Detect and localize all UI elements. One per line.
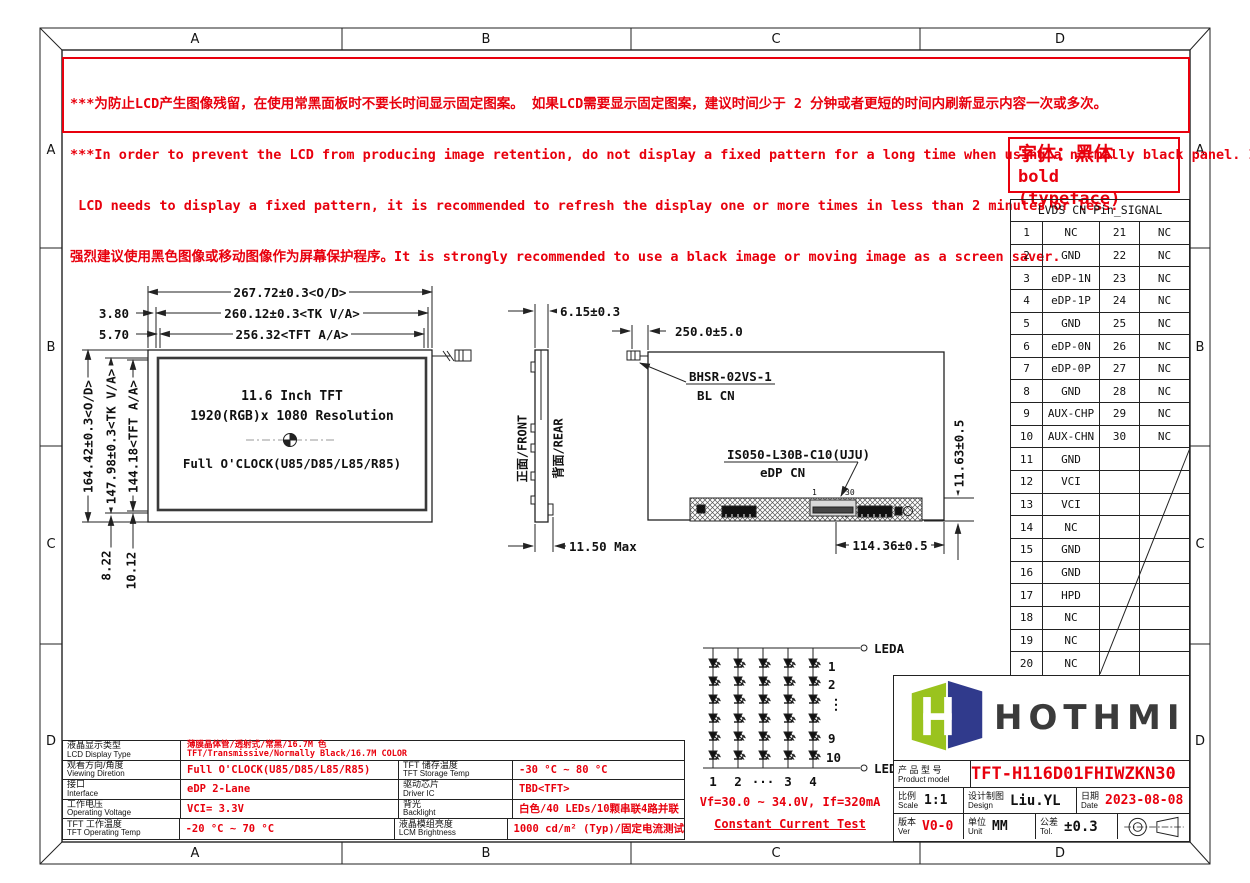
zone-row-right-c: C: [1189, 537, 1211, 552]
version-row: 版本Ver V0-0 单位Unit MM 公差Tol. ±0.3: [894, 813, 1189, 839]
pin-signal-left: GND: [1043, 245, 1100, 268]
dim-offset-570: 5.70: [92, 327, 132, 342]
dim-thickness: 6.15±0.3: [557, 304, 623, 319]
pin-number-left: 6: [1011, 335, 1043, 358]
led-row-9: 9: [828, 731, 836, 746]
pin-signal-right: [1140, 630, 1189, 653]
pin-number-right: [1100, 494, 1140, 517]
led-col-2: 2: [725, 774, 751, 789]
spec-row-voltage: 工作电压Operating Voltage VCI= 3.3V 背光Backli…: [63, 800, 684, 820]
pin-table-row: 5 GND 25 NC: [1011, 313, 1189, 336]
pin-signal-right: [1140, 516, 1189, 539]
pin-signal-right: [1140, 494, 1189, 517]
pin-signal-left: GND: [1043, 562, 1100, 585]
zone-col-top-b: B: [475, 32, 497, 47]
pin-signal-left: GND: [1043, 539, 1100, 562]
pin-signal-right: [1140, 539, 1189, 562]
spec-value: -20 °C ~ 70 °C: [180, 819, 395, 839]
dim-pcb-height: 11.63±0.5: [952, 379, 967, 529]
pin-signal-right: [1140, 562, 1189, 585]
spec-label: 接口Interface: [63, 780, 181, 799]
pin-signal-right: NC: [1140, 245, 1189, 268]
pin-table-row: 16 GND: [1011, 562, 1189, 585]
pin-signal-left: NC: [1043, 222, 1100, 245]
dim-tk-width: 260.12±0.3<TK V/A>: [192, 306, 392, 321]
pin-number-right: 23: [1100, 267, 1140, 290]
edp-pin1-label: 1: [812, 488, 817, 497]
pin-signal-left: NC: [1043, 652, 1100, 675]
pin-signal-left: NC: [1043, 607, 1100, 630]
pin-number-left: 7: [1011, 358, 1043, 381]
unit-value: MM: [986, 819, 1008, 834]
backlight-spec-text: Vf=30.0 ~ 34.0V, If=320mA: [695, 795, 885, 809]
pin-signal-left: HPD: [1043, 584, 1100, 607]
pin-number-right: 25: [1100, 313, 1140, 336]
tolerance-value: ±0.3: [1058, 819, 1098, 835]
pin-signal-right: NC: [1140, 426, 1189, 449]
pin-signal-left: eDP-1P: [1043, 290, 1100, 313]
dim-bottom-822: 8.22: [99, 541, 114, 591]
pin-signal-left: AUX-CHN: [1043, 426, 1100, 449]
typeface-note-cn: 字体：黑体: [1018, 142, 1170, 166]
pin-number-left: 20: [1011, 652, 1043, 675]
panel-size-text: 11.6 Inch TFT: [172, 389, 412, 404]
spec-value: Full O'CLOCK(U85/D85/L85/R85): [181, 761, 399, 780]
zone-row-right-d: D: [1189, 734, 1211, 749]
pin-signal-left: VCI: [1043, 494, 1100, 517]
led-col-dots: ···: [750, 774, 776, 789]
pin-number-left: 19: [1011, 630, 1043, 653]
dim-max-thickness: 11.50 Max: [566, 539, 640, 554]
led-row-10: 10: [826, 750, 841, 765]
spec-label: TFT 工作温度TFT Operating Temp: [63, 819, 180, 839]
version-label: 版本Ver: [894, 817, 916, 836]
zone-row-left-c: C: [40, 537, 62, 552]
edp-connector-part: IS050-L30B-C10(UJU): [727, 447, 870, 462]
spec-value: -30 °C ~ 80 °C: [513, 761, 684, 780]
pin-signal-left: NC: [1043, 630, 1100, 653]
image-retention-warning: ***为防止LCD产生图像残留，在使用常黑面板时不要长时间显示固定图案。 如果L…: [62, 57, 1190, 133]
pin-number-left: 1: [1011, 222, 1043, 245]
backlight-test-text: Constant Current Test: [695, 817, 885, 831]
pin-number-right: 28: [1100, 380, 1140, 403]
pin-table-row: 10 AUX-CHN 30 NC: [1011, 426, 1189, 449]
typeface-note: 字体：黑体 bold (typeface): [1008, 137, 1180, 193]
spec-row-viewing: 观看方向/角度Viewing Diretion Full O'CLOCK(U85…: [63, 761, 684, 781]
pin-signal-left: eDP-1N: [1043, 267, 1100, 290]
zone-row-right-b: B: [1189, 340, 1211, 355]
pin-number-right: 22: [1100, 245, 1140, 268]
spec-label: 工作电压Operating Voltage: [63, 800, 181, 819]
design-label: 设计制图Design: [964, 791, 1004, 810]
spec-label: TFT 储存温度TFT Storage Temp: [399, 761, 513, 780]
pin-number-left: 5: [1011, 313, 1043, 336]
drawing-sheet: A B C D A B C D A B C D A B C D ***为防止LC…: [0, 0, 1250, 883]
spec-value: eDP 2-Lane: [181, 780, 399, 799]
pin-table-row: 9 AUX-CHP 29 NC: [1011, 403, 1189, 426]
pin-table-row: 12 VCI: [1011, 471, 1189, 494]
pin-signal-right: [1140, 584, 1189, 607]
date-value: 2023-08-08: [1099, 793, 1183, 808]
pin-table-row: 11 GND: [1011, 448, 1189, 471]
pin-signal-left: eDP-0N: [1043, 335, 1100, 358]
pin-number-right: [1100, 539, 1140, 562]
pin-number-left: 8: [1011, 380, 1043, 403]
design-value: Liu.YL: [1004, 793, 1061, 809]
led-anode-label: LEDA: [874, 641, 904, 656]
pin-table-rows: 1 NC 21 NC 2 GND 22 NC 3 eDP-1N 23 NC: [1011, 222, 1189, 675]
pin-table-row: 6 eDP-0N 26 NC: [1011, 335, 1189, 358]
spec-label: 背光Backlight: [399, 800, 513, 819]
lvds-pin-table: LVDS CN Pin_SIGNAL 1 NC 21 NC 2 GND 22 N…: [1010, 199, 1190, 676]
pin-signal-right: [1140, 652, 1189, 675]
panel-viewing-text: Full O'CLOCK(U85/D85/L85/R85): [162, 456, 422, 471]
led-row-dots: ⋮: [829, 697, 843, 713]
led-row-2: 2: [828, 677, 836, 692]
title-block: HOTHMI 产 品 型 号 Product model TFT-H116D01…: [893, 675, 1190, 842]
scale-value: 1:1: [918, 793, 947, 808]
date-label: 日期Date: [1077, 791, 1099, 810]
pin-number-right: [1100, 607, 1140, 630]
spec-value: 1000 cd/m² (Typ)/固定电流测试: [508, 819, 684, 839]
product-model-value: TFT-H116D01FHIWZKN30: [971, 761, 1189, 787]
pin-table-row: 1 NC 21 NC: [1011, 222, 1189, 245]
pin-signal-right: NC: [1140, 222, 1189, 245]
pin-number-right: 21: [1100, 222, 1140, 245]
pin-number-right: 27: [1100, 358, 1140, 381]
tolerance-label: 公差Tol.: [1036, 817, 1058, 836]
zone-row-left-b: B: [40, 340, 62, 355]
pin-number-right: 29: [1100, 403, 1140, 426]
scale-row: 比例Scale 1:1 设计制图Design Liu.YL 日期Date 202…: [894, 787, 1189, 813]
pin-table-row: 17 HPD: [1011, 584, 1189, 607]
pin-number-right: [1100, 471, 1140, 494]
pin-number-right: 24: [1100, 290, 1140, 313]
spec-row-display-type: 液晶显示类型 LCD Display Type 薄膜晶体管/透射式/常黑/16.…: [63, 741, 684, 761]
spec-label: 观看方向/角度Viewing Diretion: [63, 761, 181, 780]
dim-tk-height: 147.98±0.3<TK V/A>: [104, 357, 119, 517]
brand-name: HOTHMI: [994, 698, 1186, 738]
pin-signal-left: NC: [1043, 516, 1100, 539]
logo-row: HOTHMI: [894, 676, 1189, 760]
pin-signal-right: NC: [1140, 290, 1189, 313]
led-col-3: 3: [775, 774, 801, 789]
zone-col-bottom-c: C: [765, 846, 787, 861]
dim-connector-offset: 114.36±0.5: [810, 538, 970, 553]
spec-value: 白色/40 LEDs/10颗串联4路并联: [513, 800, 684, 819]
pin-number-left: 3: [1011, 267, 1043, 290]
dim-bottom-1012: 10.12: [124, 543, 139, 599]
product-model-row: 产 品 型 号 Product model TFT-H116D01FHIWZKN…: [894, 760, 1189, 787]
panel-resolution-text: 1920(RGB)x 1080 Resolution: [172, 409, 412, 424]
edp-pin30-label: 30: [845, 488, 855, 497]
warning-line-1: ***为防止LCD产生图像残留，在使用常黑面板时不要长时间显示固定图案。 如果L…: [70, 96, 1182, 113]
pin-table-title: LVDS CN Pin_SIGNAL: [1011, 200, 1189, 222]
pin-table-row: 2 GND 22 NC: [1011, 245, 1189, 268]
bl-connector-name: BL CN: [697, 388, 735, 403]
pin-number-left: 16: [1011, 562, 1043, 585]
led-col-1: 1: [700, 774, 726, 789]
pin-number-right: 30: [1100, 426, 1140, 449]
spec-value: VCI= 3.3V: [181, 800, 399, 819]
zone-col-top-c: C: [765, 32, 787, 47]
pin-table-row: 14 NC: [1011, 516, 1189, 539]
pin-signal-left: GND: [1043, 448, 1100, 471]
pin-table-row: 7 eDP-0P 27 NC: [1011, 358, 1189, 381]
zone-col-bottom-b: B: [475, 846, 497, 861]
spec-label: 液晶模组亮度LCM Brightness: [395, 819, 508, 839]
hothmi-logo-icon: [904, 678, 990, 758]
dim-outline-height: 164.42±0.3<O/D>: [81, 357, 96, 517]
pin-number-left: 18: [1011, 607, 1043, 630]
pin-number-right: [1100, 630, 1140, 653]
spec-label: 驱动芯片Driver IC: [399, 780, 513, 799]
pin-signal-right: NC: [1140, 380, 1189, 403]
pin-signal-right: [1140, 607, 1189, 630]
bl-connector-part: BHSR-02VS-1: [689, 369, 772, 384]
pin-number-left: 13: [1011, 494, 1043, 517]
spec-table: 液晶显示类型 LCD Display Type 薄膜晶体管/透射式/常黑/16.…: [62, 740, 685, 840]
pin-number-left: 10: [1011, 426, 1043, 449]
pin-number-right: 26: [1100, 335, 1140, 358]
pin-table-row: 19 NC: [1011, 630, 1189, 653]
product-model-label: 产 品 型 号 Product model: [894, 765, 950, 784]
zone-col-bottom-d: D: [1049, 846, 1071, 861]
side-front-label: 正面/FRONT: [514, 369, 531, 529]
pin-table-row: 18 NC: [1011, 607, 1189, 630]
dim-offset-380: 3.80: [92, 306, 132, 321]
zone-col-top-a: A: [184, 32, 206, 47]
spec-row-interface: 接口Interface eDP 2-Lane 驱动芯片Driver IC TBD…: [63, 780, 684, 800]
spec-value: 薄膜晶体管/透射式/常黑/16.7M 色 TFT/Transmissive/No…: [181, 741, 684, 760]
spec-value: TBD<TFT>: [513, 780, 684, 799]
pin-number-right: [1100, 584, 1140, 607]
pin-number-right: [1100, 562, 1140, 585]
dim-bl-wire-length: 250.0±5.0: [672, 324, 746, 339]
zone-col-bottom-a: A: [184, 846, 206, 861]
pin-signal-right: NC: [1140, 335, 1189, 358]
pin-number-right: [1100, 652, 1140, 675]
side-rear-label: 背面/REAR: [550, 369, 567, 529]
pin-signal-right: NC: [1140, 358, 1189, 381]
pin-signal-left: VCI: [1043, 471, 1100, 494]
pin-signal-right: [1140, 471, 1189, 494]
pin-signal-left: eDP-0P: [1043, 358, 1100, 381]
pin-number-left: 17: [1011, 584, 1043, 607]
edp-connector-name: eDP CN: [760, 465, 805, 480]
pin-number-left: 15: [1011, 539, 1043, 562]
version-value: V0-0: [916, 819, 953, 834]
dim-active-width: 256.32<TFT A/A>: [202, 327, 382, 342]
projection-symbol-icon: [1121, 815, 1187, 839]
pin-table-row: 4 eDP-1P 24 NC: [1011, 290, 1189, 313]
pin-number-right: [1100, 448, 1140, 471]
zone-row-left-a: A: [40, 143, 62, 158]
pin-signal-right: [1140, 448, 1189, 471]
pin-table-row: 8 GND 28 NC: [1011, 380, 1189, 403]
led-row-1: 1: [828, 659, 836, 674]
pin-signal-right: NC: [1140, 403, 1189, 426]
pin-signal-left: GND: [1043, 380, 1100, 403]
pin-table-row: 3 eDP-1N 23 NC: [1011, 267, 1189, 290]
led-col-4: 4: [800, 774, 826, 789]
pin-number-left: 2: [1011, 245, 1043, 268]
pin-number-left: 12: [1011, 471, 1043, 494]
pin-number-right: [1100, 516, 1140, 539]
pin-number-left: 9: [1011, 403, 1043, 426]
pin-table-row: 20 NC: [1011, 652, 1189, 675]
spec-row-temperature: TFT 工作温度TFT Operating Temp -20 °C ~ 70 °…: [63, 819, 684, 839]
scale-label: 比例Scale: [894, 791, 918, 810]
zone-row-left-d: D: [40, 734, 62, 749]
pin-table-row: 13 VCI: [1011, 494, 1189, 517]
zone-col-top-d: D: [1049, 32, 1071, 47]
spec-label: 液晶显示类型 LCD Display Type: [63, 741, 181, 760]
pin-number-left: 4: [1011, 290, 1043, 313]
pin-signal-right: NC: [1140, 267, 1189, 290]
pin-signal-right: NC: [1140, 313, 1189, 336]
pin-signal-left: GND: [1043, 313, 1100, 336]
pin-signal-left: AUX-CHP: [1043, 403, 1100, 426]
pin-number-left: 14: [1011, 516, 1043, 539]
pin-number-left: 11: [1011, 448, 1043, 471]
dim-active-height: 144.18<TFT A/A>: [126, 357, 141, 517]
dim-outline-width: 267.72±0.3<O/D>: [200, 285, 380, 300]
unit-label: 单位Unit: [964, 817, 986, 836]
pin-table-row: 15 GND: [1011, 539, 1189, 562]
